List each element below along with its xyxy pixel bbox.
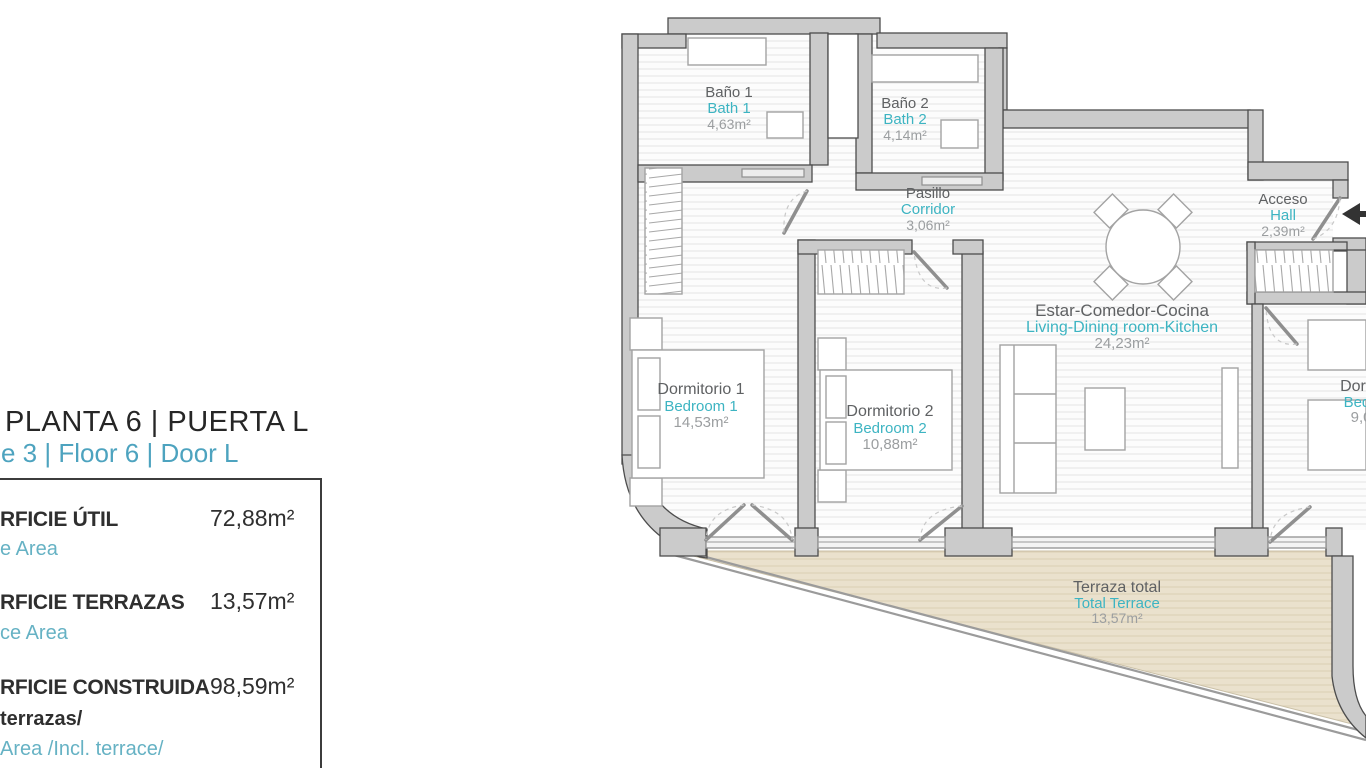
svg-text:Terraza total: Terraza total bbox=[1073, 579, 1161, 596]
duct-shaft bbox=[828, 34, 858, 138]
entrance-arrow-icon bbox=[1342, 203, 1366, 225]
floorplan-drawing: Baño 1 Bath 1 4,63m² Baño 2 Bath 2 4,14m… bbox=[0, 0, 1366, 768]
svg-text:Hall: Hall bbox=[1270, 207, 1296, 224]
nightstand-icon bbox=[630, 318, 662, 350]
svg-text:Acceso: Acceso bbox=[1258, 191, 1307, 208]
tv-unit-icon bbox=[1222, 368, 1238, 468]
svg-text:Corridor: Corridor bbox=[901, 201, 955, 218]
room-label-pasillo: Pasillo Corridor 3,06m² bbox=[901, 185, 955, 233]
svg-text:4,63m²: 4,63m² bbox=[707, 116, 751, 132]
coffee-table-icon bbox=[1085, 388, 1125, 450]
svg-text:Estar-Comedor-Cocina: Estar-Comedor-Cocina bbox=[1035, 301, 1209, 320]
room-label-bano1: Baño 1 Bath 1 4,63m² bbox=[705, 84, 753, 132]
svg-text:4,14m²: 4,14m² bbox=[883, 127, 927, 143]
svg-text:Bedroom 1: Bedroom 1 bbox=[664, 398, 737, 415]
wardrobe-icon bbox=[645, 168, 682, 294]
nightstand-icon bbox=[818, 338, 846, 370]
svg-text:Pasillo: Pasillo bbox=[906, 185, 950, 202]
svg-text:Bath 2: Bath 2 bbox=[883, 111, 926, 128]
bed-icon bbox=[1308, 320, 1366, 370]
svg-text:Dormitorio: Dormitorio bbox=[1340, 378, 1366, 395]
sofa-icon bbox=[1000, 345, 1056, 493]
svg-text:24,23m²: 24,23m² bbox=[1094, 335, 1149, 352]
svg-text:14,53m²: 14,53m² bbox=[673, 414, 728, 431]
svg-text:Living-Dining room-Kitchen: Living-Dining room-Kitchen bbox=[1026, 319, 1218, 336]
svg-text:Baño 1: Baño 1 bbox=[705, 84, 753, 101]
svg-text:Baño 2: Baño 2 bbox=[881, 95, 929, 112]
room-label-bano2: Baño 2 Bath 2 4,14m² bbox=[881, 95, 929, 143]
bath1-sink-icon bbox=[767, 112, 803, 138]
svg-text:9,02m²: 9,02m² bbox=[1351, 409, 1366, 426]
svg-text:Dormitorio 1: Dormitorio 1 bbox=[657, 381, 744, 398]
svg-text:10,88m²: 10,88m² bbox=[862, 436, 917, 453]
floorplan-page: PLANTA 6 | PUERTA L e 3 | Floor 6 | Door… bbox=[0, 0, 1366, 768]
svg-text:13,57m²: 13,57m² bbox=[1091, 610, 1143, 626]
bath2-tub-icon bbox=[872, 55, 978, 82]
svg-text:2,39m²: 2,39m² bbox=[1261, 223, 1305, 239]
svg-text:Bath 1: Bath 1 bbox=[707, 100, 750, 117]
svg-text:3,06m²: 3,06m² bbox=[906, 217, 950, 233]
svg-text:Bedroom 2: Bedroom 2 bbox=[853, 420, 926, 437]
nightstand-icon bbox=[818, 470, 846, 502]
bath1-tub-icon bbox=[688, 38, 766, 65]
wardrobe-icon bbox=[818, 250, 904, 294]
nightstand-icon bbox=[630, 478, 662, 506]
hall-closet-icon bbox=[1255, 250, 1333, 292]
svg-text:Dormitorio 2: Dormitorio 2 bbox=[846, 403, 933, 420]
bath2-sink-icon bbox=[941, 120, 978, 148]
